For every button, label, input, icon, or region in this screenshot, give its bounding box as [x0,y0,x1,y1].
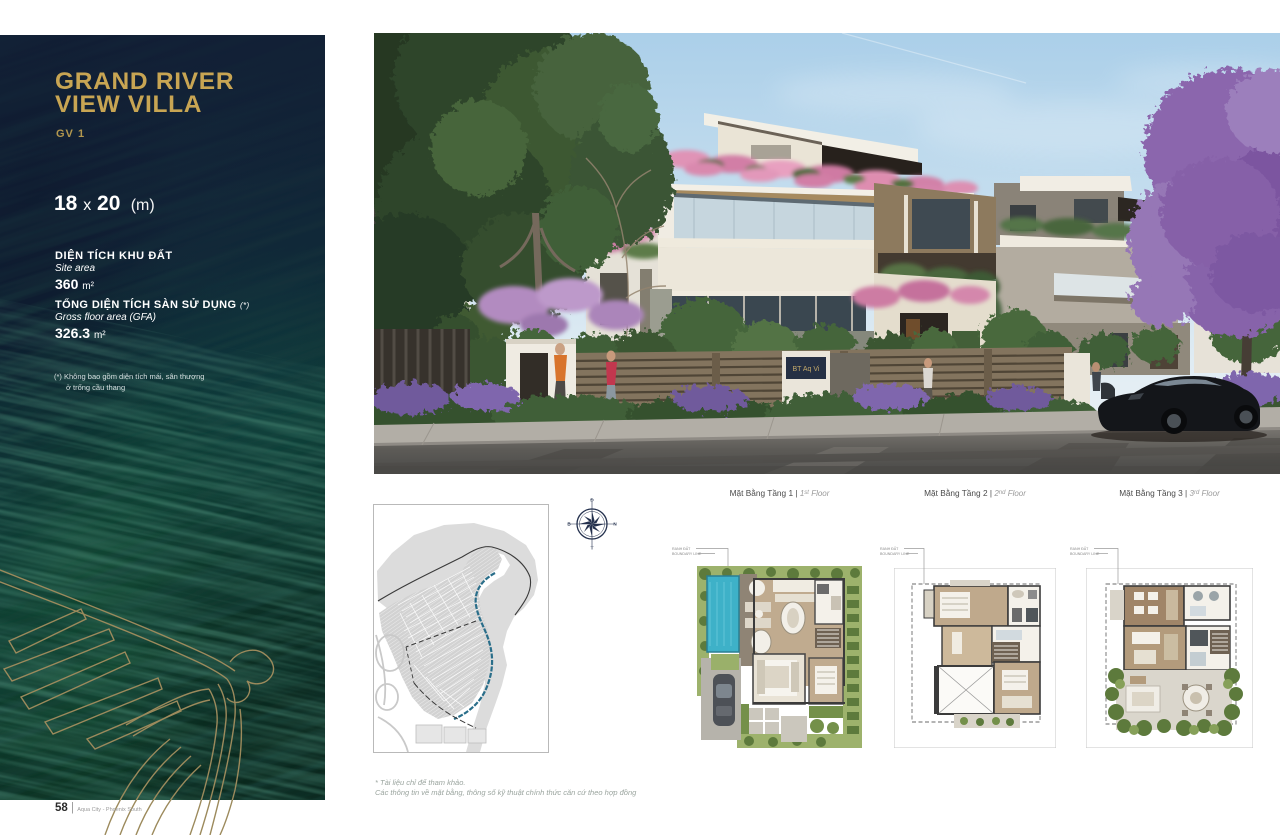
svg-text:BOUNDARY LINE: BOUNDARY LINE [1070,552,1100,556]
svg-text:BT Aq Vi: BT Aq Vi [793,366,820,373]
svg-text:BOUNDARY LINE: BOUNDARY LINE [880,552,910,556]
svg-text:N: N [613,522,617,527]
svg-text:RANH ĐẤT: RANH ĐẤT [880,547,899,551]
svg-text:RANH ĐẤT: RANH ĐẤT [672,547,691,551]
svg-text:Đ: Đ [590,498,594,502]
svg-text:T: T [591,545,594,550]
svg-text:RANH ĐẤT: RANH ĐẤT [1070,547,1089,551]
svg-text:BOUNDARY LINE: BOUNDARY LINE [672,552,702,556]
